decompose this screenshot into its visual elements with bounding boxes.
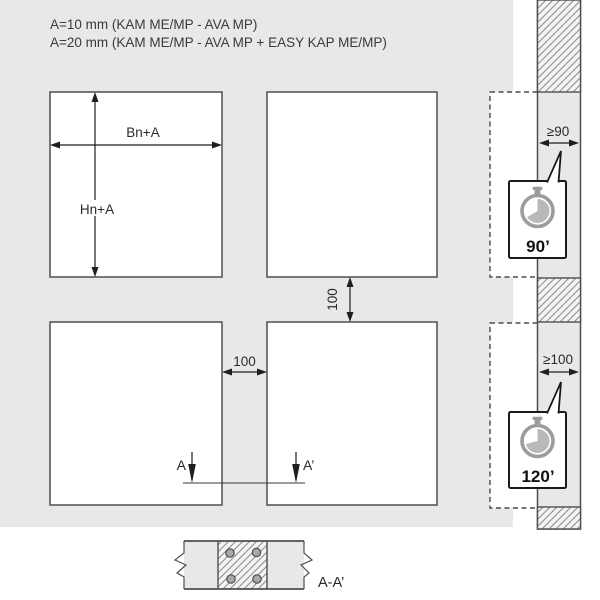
section-view-label: A-A’ [318,575,344,591]
panel-bottom-right [267,322,437,505]
fastener-dot [253,575,261,583]
panel-bottom-left [50,322,222,505]
wall-hatch-bottom [538,507,581,529]
wall-hatch-top [538,0,581,92]
wall-hatch-middle [538,278,581,322]
panel-height-label: Hn+A [80,202,114,217]
installation-diagram: A=10 mm (KAM ME/MP - AVA MP) A=20 mm (KA… [0,0,600,600]
panel-top-right [267,92,437,277]
diagram-canvas: A=10 mm (KAM ME/MP - AVA MP) A=20 mm (KA… [0,0,600,600]
fire-rating-top-label: 90’ [526,237,550,256]
header-line-1: A=10 mm (KAM ME/MP - AVA MP) [50,17,257,32]
wall-clearance-top-label: ≥90 [547,124,569,139]
horizontal-gap-label: 100 [233,354,256,369]
wall-clearance-bottom-label: ≥100 [543,352,573,367]
panel-width-label: Bn+A [126,125,159,140]
header-line-2: A=20 mm (KAM ME/MP - AVA MP + EASY KAP M… [50,35,387,50]
fire-rating-bottom-label: 120’ [521,467,554,486]
panel-top-left [50,92,222,277]
fastener-dot [226,549,234,557]
vertical-gap-label: 100 [325,288,340,311]
section-marker-right: A’ [303,457,314,473]
section-marker-left: A [177,457,187,473]
fastener-dot [252,548,260,556]
fastener-dot [227,575,235,583]
section-view: A-A’ [175,541,344,591]
